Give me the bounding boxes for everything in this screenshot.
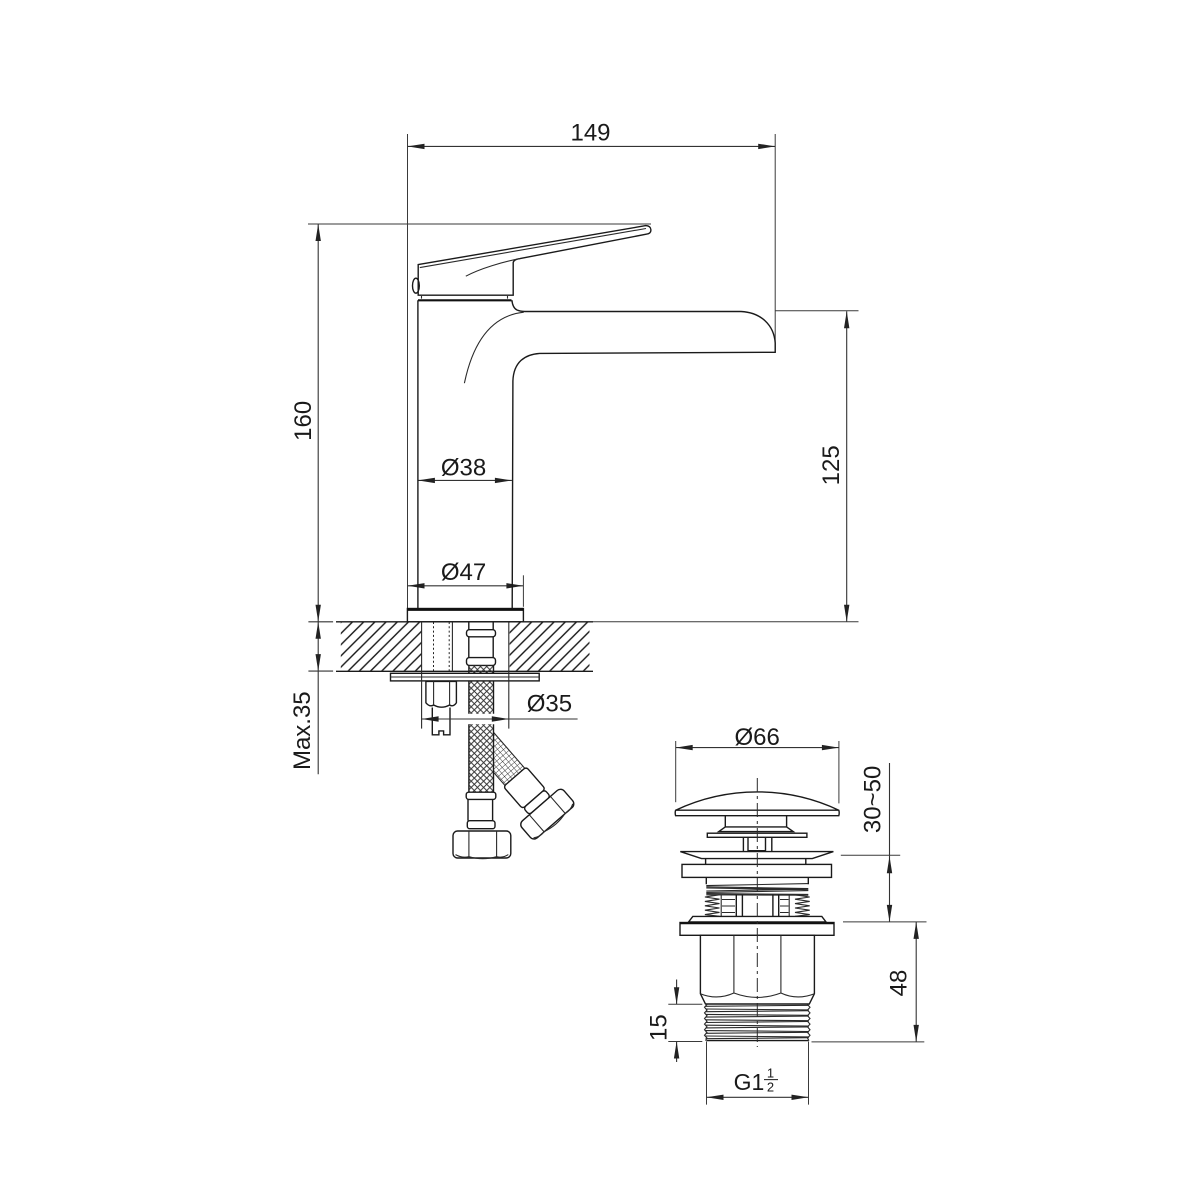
svg-text:Max.35: Max.35 — [289, 691, 316, 770]
svg-text:2: 2 — [767, 1080, 774, 1095]
svg-text:Ø38: Ø38 — [441, 455, 486, 482]
svg-text:149: 149 — [570, 120, 610, 147]
svg-text:G1: G1 — [734, 1069, 765, 1095]
svg-text:30~50: 30~50 — [860, 766, 887, 833]
svg-text:1: 1 — [767, 1066, 774, 1081]
svg-text:160: 160 — [290, 401, 317, 441]
svg-text:125: 125 — [818, 445, 845, 485]
svg-text:Ø66: Ø66 — [735, 724, 780, 751]
svg-text:Ø35: Ø35 — [527, 690, 572, 717]
svg-text:Ø47: Ø47 — [441, 559, 486, 586]
svg-text:48: 48 — [886, 970, 913, 997]
svg-text:15: 15 — [646, 1014, 673, 1041]
